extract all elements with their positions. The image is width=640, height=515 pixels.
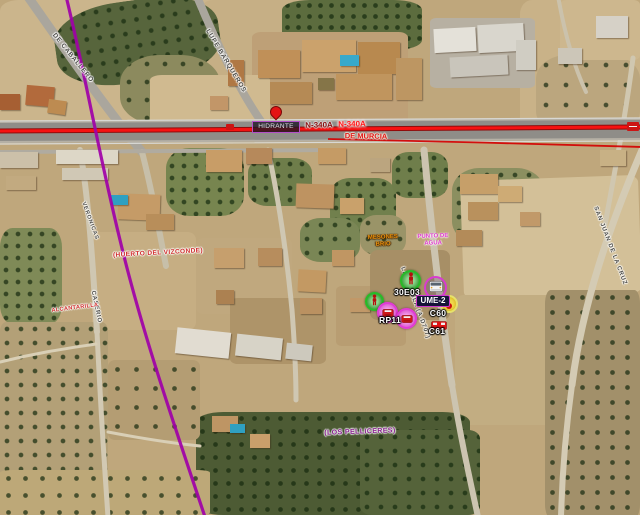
- unit-label-UME-2[interactable]: UME-2: [416, 295, 450, 307]
- route-label-n340a: N-340A: [305, 120, 333, 129]
- poi-label-punto-de-agua: PUNTO DEAGUA: [417, 233, 448, 247]
- car-icon: [401, 310, 413, 328]
- road-shield-icon: [627, 122, 639, 131]
- route-label-n340a-highlight: N-340A: [338, 119, 366, 128]
- road-shield-icon: [226, 124, 234, 130]
- unit-label-RP11[interactable]: RP11: [379, 315, 401, 325]
- unit-label-C61[interactable]: C61: [429, 326, 446, 336]
- map-canvas[interactable]: DE CABALLERO LUPE BARQUEROS VERONICAS CA…: [0, 0, 640, 515]
- hydrant-label[interactable]: HIDRANTE: [252, 121, 300, 133]
- route-overlay-layer: [0, 0, 640, 515]
- poi-label-mesones: MESONESBRIO: [368, 234, 398, 248]
- van-icon: [429, 279, 443, 297]
- unit-label-C60[interactable]: C60: [430, 308, 447, 318]
- route-label-de-murcia: DE MURCIA: [345, 131, 388, 141]
